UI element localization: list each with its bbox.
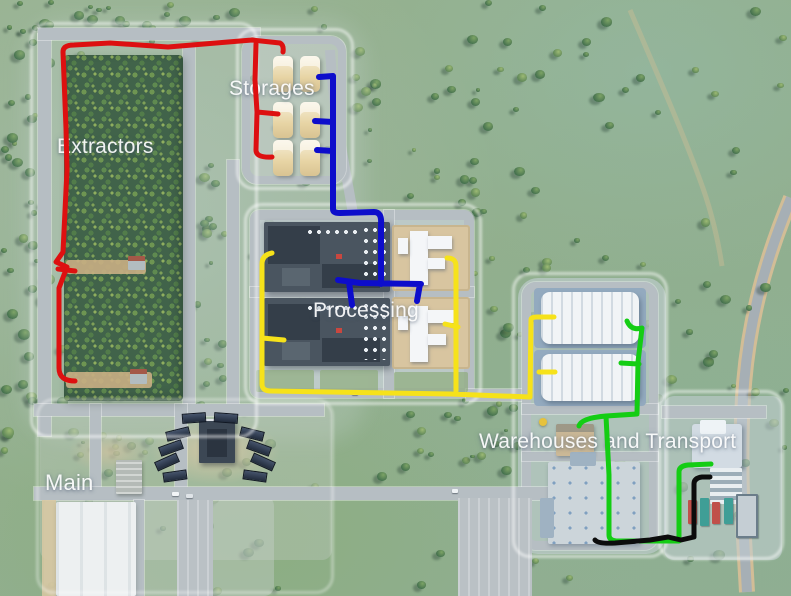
- game-map-viewport[interactable]: ExtractorsStoragesProcessingWarehouses a…: [0, 0, 791, 596]
- green-warehouse-route: [579, 321, 711, 541]
- yellow-processing-route: [262, 253, 555, 397]
- route-annotations-layer: [0, 0, 791, 596]
- black-transport-route: [595, 477, 710, 543]
- red-extractor-route: [56, 40, 283, 381]
- blue-storage-route: [315, 76, 421, 305]
